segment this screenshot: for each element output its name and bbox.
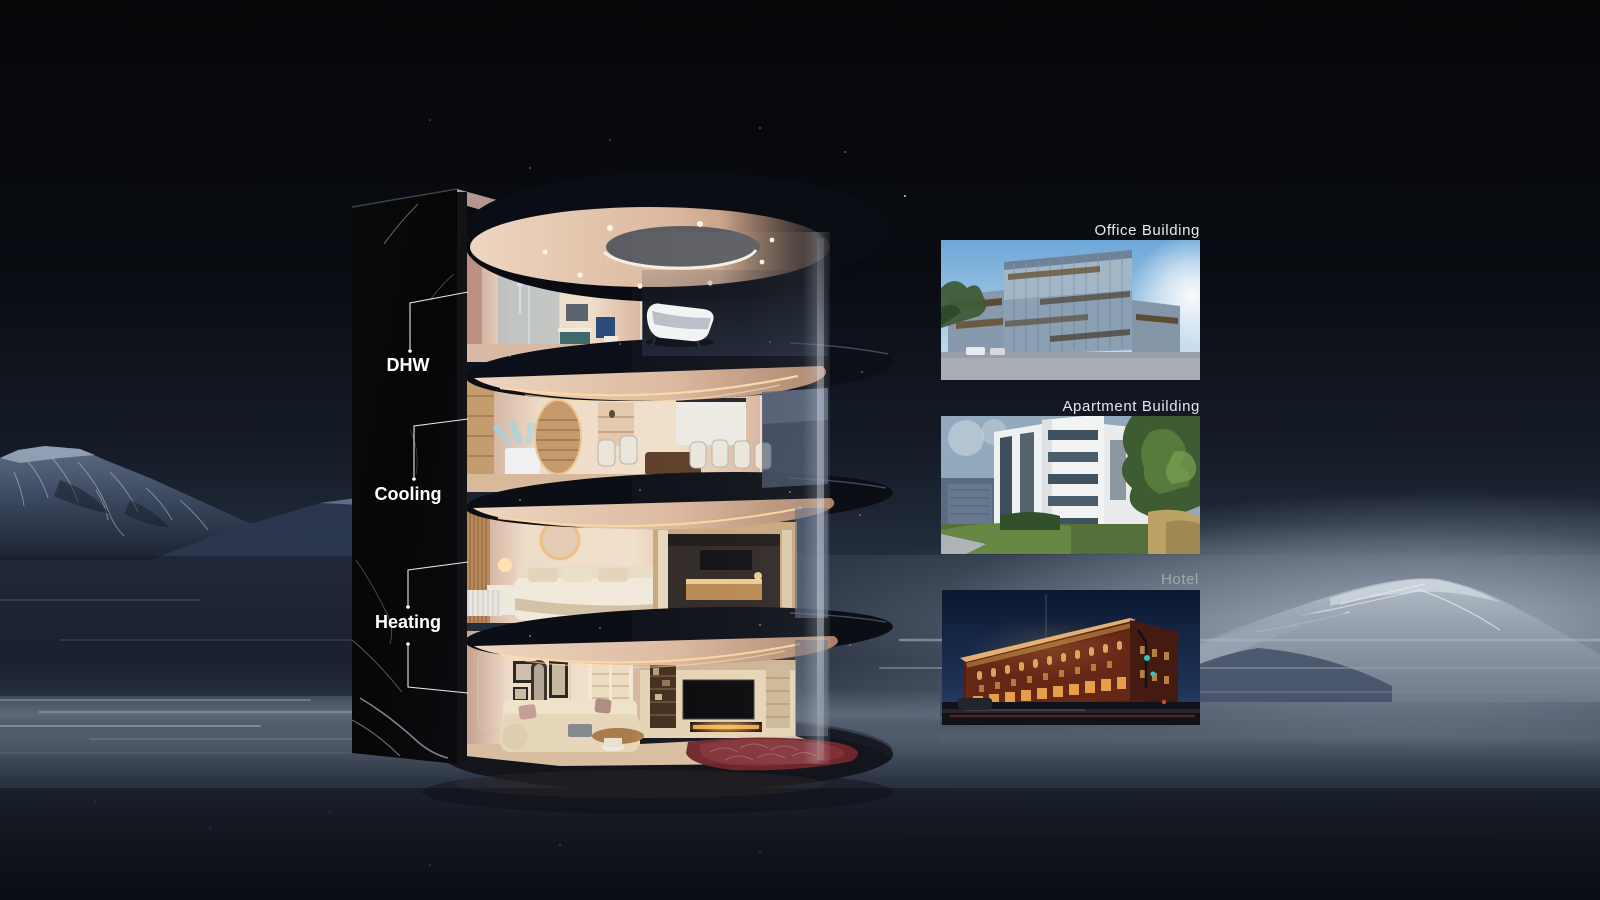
svg-text:Cooling: Cooling (375, 484, 442, 504)
svg-text:Hotel: Hotel (1161, 571, 1199, 588)
svg-text:Heating: Heating (375, 612, 441, 632)
svg-text:Office Building: Office Building (1095, 222, 1200, 239)
svg-text:Apartment Building: Apartment Building (1062, 398, 1200, 415)
svg-text:DHW: DHW (387, 355, 430, 375)
